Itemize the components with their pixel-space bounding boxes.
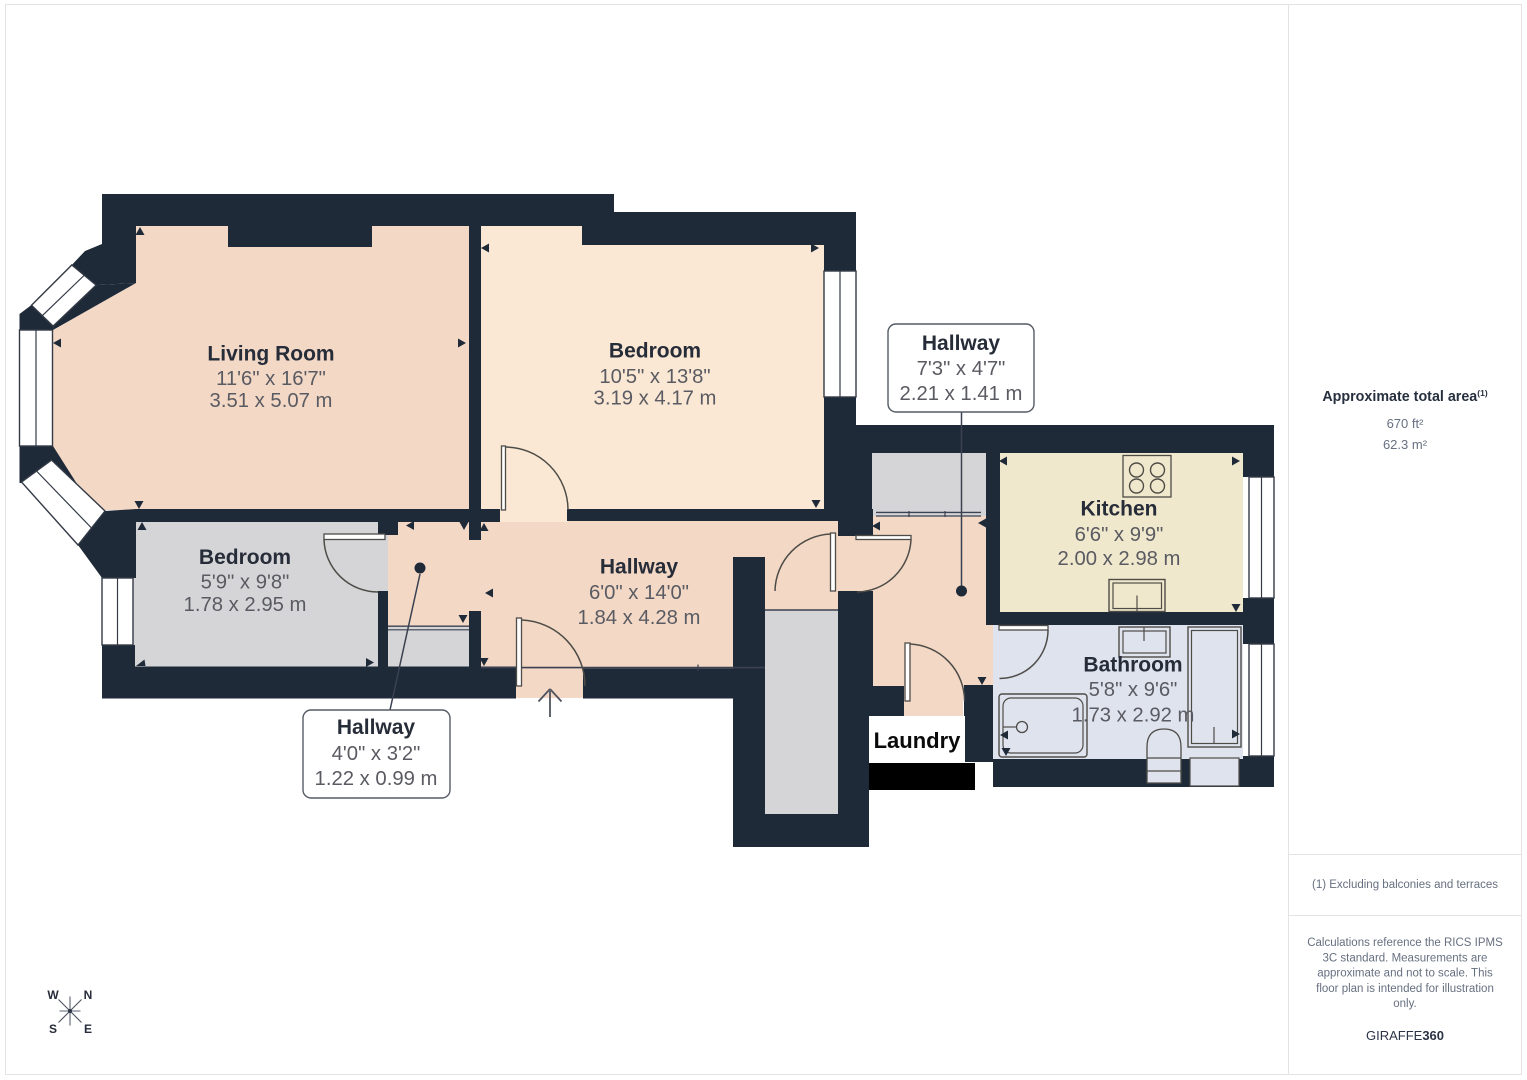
svg-text:Hallway: Hallway <box>922 332 1001 355</box>
svg-text:6'0" x 14'0": 6'0" x 14'0" <box>589 582 689 604</box>
svg-text:1.22 x 0.99 m: 1.22 x 0.99 m <box>315 768 438 790</box>
svg-text:3C standard. Measurements are: 3C standard. Measurements are <box>1323 952 1488 964</box>
svg-text:Bedroom: Bedroom <box>609 340 701 363</box>
svg-text:6'6" x 9'9": 6'6" x 9'9" <box>1075 524 1164 546</box>
svg-text:N: N <box>84 988 93 1002</box>
svg-text:5'8" x 9'6": 5'8" x 9'6" <box>1089 679 1178 701</box>
svg-text:floor plan is intended for ill: floor plan is intended for illustration <box>1316 983 1494 995</box>
svg-text:5'9" x 9'8": 5'9" x 9'8" <box>201 572 290 594</box>
svg-text:Bedroom: Bedroom <box>199 546 291 569</box>
svg-text:Calculations reference the RIC: Calculations reference the RICS IPMS <box>1307 937 1503 949</box>
svg-text:2.21 x 1.41 m: 2.21 x 1.41 m <box>900 383 1023 405</box>
svg-text:3.51 x 5.07 m: 3.51 x 5.07 m <box>210 390 333 412</box>
svg-text:7'3" x 4'7": 7'3" x 4'7" <box>917 358 1006 380</box>
svg-text:Kitchen: Kitchen <box>1080 498 1157 521</box>
svg-text:2.00 x 2.98 m: 2.00 x 2.98 m <box>1058 548 1181 570</box>
svg-text:approximate and not to scale.: approximate and not to scale. This <box>1317 968 1493 980</box>
svg-text:Hallway: Hallway <box>337 716 416 739</box>
svg-text:1.78 x 2.95 m: 1.78 x 2.95 m <box>184 594 307 616</box>
svg-text:Living Room: Living Room <box>207 343 334 366</box>
svg-text:Laundry: Laundry <box>874 728 962 753</box>
svg-text:10'5" x 13'8": 10'5" x 13'8" <box>599 366 710 388</box>
svg-text:Bathroom: Bathroom <box>1083 654 1182 677</box>
svg-text:GIRAFFE360: GIRAFFE360 <box>1366 1028 1444 1043</box>
svg-text:1.73 x 2.92 m: 1.73 x 2.92 m <box>1072 705 1195 727</box>
svg-text:1.84 x 4.28 m: 1.84 x 4.28 m <box>578 607 701 629</box>
svg-text:4'0" x 3'2": 4'0" x 3'2" <box>332 743 421 765</box>
svg-text:11'6" x 16'7": 11'6" x 16'7" <box>216 368 326 390</box>
svg-text:S: S <box>49 1022 57 1036</box>
svg-text:only.: only. <box>1393 998 1416 1010</box>
svg-text:670 ft²: 670 ft² <box>1387 416 1425 431</box>
svg-text:62.3 m²: 62.3 m² <box>1383 437 1428 452</box>
svg-text:W: W <box>47 988 59 1002</box>
svg-text:(1) Excluding balconies and te: (1) Excluding balconies and terraces <box>1312 879 1498 891</box>
svg-text:Approximate total area(1): Approximate total area(1) <box>1322 388 1487 405</box>
svg-text:E: E <box>84 1022 92 1036</box>
svg-text:3.19 x 4.17 m: 3.19 x 4.17 m <box>594 388 717 410</box>
svg-text:Hallway: Hallway <box>600 556 679 579</box>
